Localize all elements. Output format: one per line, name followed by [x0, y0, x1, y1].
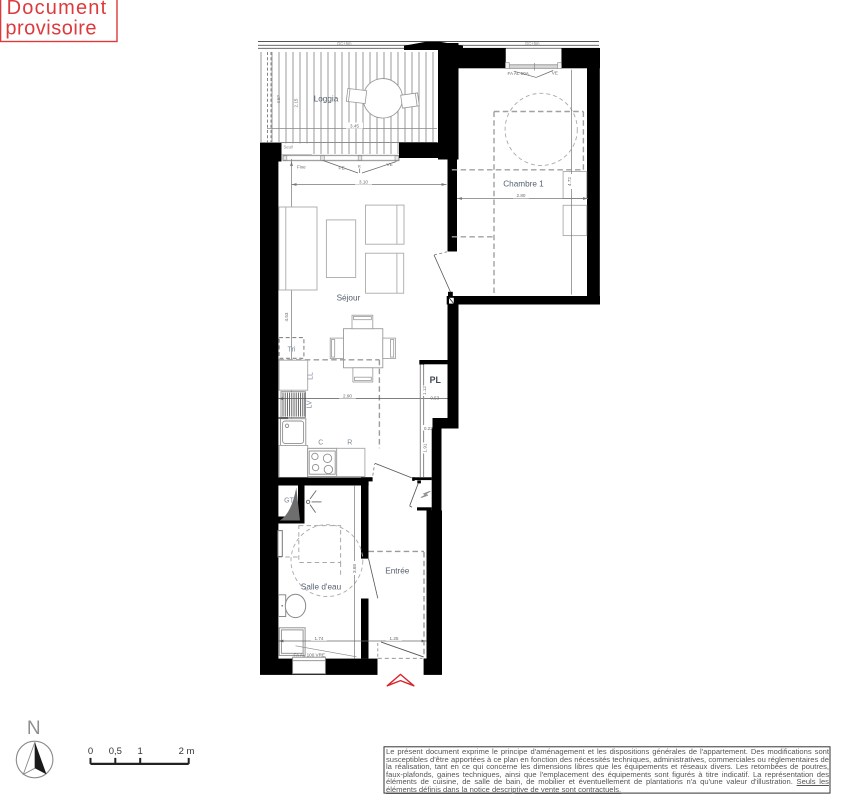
- svg-text:4.72: 4.72: [567, 177, 572, 186]
- svg-text:C: C: [318, 439, 323, 446]
- svg-text:PE: PE: [339, 166, 345, 171]
- svg-text:2.15: 2.15: [294, 98, 299, 107]
- svg-text:Séjour: Séjour: [337, 294, 361, 303]
- svg-text:GC+5m: GC+5m: [337, 41, 352, 46]
- svg-text:2 m: 2 m: [179, 746, 195, 757]
- svg-text:SEP: SEP: [276, 95, 281, 104]
- svg-text:R: R: [347, 439, 352, 446]
- svg-text:0: 0: [88, 746, 93, 757]
- svg-text:Salle d'eau: Salle d'eau: [301, 582, 342, 591]
- svg-text:GT: GT: [284, 498, 294, 505]
- svg-text:4.53: 4.53: [284, 312, 289, 321]
- svg-text:LV: LV: [307, 400, 314, 408]
- svg-text:PL: PL: [430, 375, 442, 385]
- svg-text:FA AL 100 VRE: FA AL 100 VRE: [294, 652, 326, 657]
- svg-text:LL: LL: [308, 372, 315, 380]
- svg-text:0.53: 0.53: [430, 395, 439, 400]
- svg-text:R: R: [358, 164, 361, 169]
- svg-text:Entrée: Entrée: [385, 567, 410, 576]
- svg-text:1.12: 1.12: [422, 386, 427, 395]
- svg-text:1.74: 1.74: [315, 636, 324, 641]
- svg-text:1.91: 1.91: [422, 443, 427, 452]
- svg-text:0,5: 0,5: [109, 746, 122, 757]
- svg-text:3.10: 3.10: [359, 179, 368, 184]
- svg-text:3.68: 3.68: [352, 564, 357, 573]
- svg-text:Fixe: Fixe: [297, 164, 306, 169]
- svg-text:Tri: Tri: [288, 346, 296, 353]
- svg-text:VE: VE: [387, 162, 393, 167]
- svg-text:3.45: 3.45: [350, 123, 359, 128]
- svg-text:Loggia: Loggia: [314, 95, 339, 104]
- svg-text:0.22: 0.22: [424, 426, 433, 431]
- svg-text:GC+5m: GC+5m: [525, 41, 540, 46]
- svg-text:2.90: 2.90: [343, 394, 352, 399]
- svg-text:2.80: 2.80: [517, 193, 526, 198]
- svg-text:Seuil: Seuil: [284, 145, 293, 150]
- svg-text:1: 1: [138, 746, 143, 757]
- svg-text:Document: Document: [7, 0, 108, 19]
- svg-text:N: N: [27, 718, 41, 739]
- svg-text:Chambre 1: Chambre 1: [503, 179, 544, 188]
- svg-text:FA AL 50A: FA AL 50A: [508, 71, 530, 76]
- svg-text:provisoire: provisoire: [5, 18, 97, 40]
- svg-text:1.25: 1.25: [390, 636, 399, 641]
- svg-text:VE: VE: [552, 70, 558, 75]
